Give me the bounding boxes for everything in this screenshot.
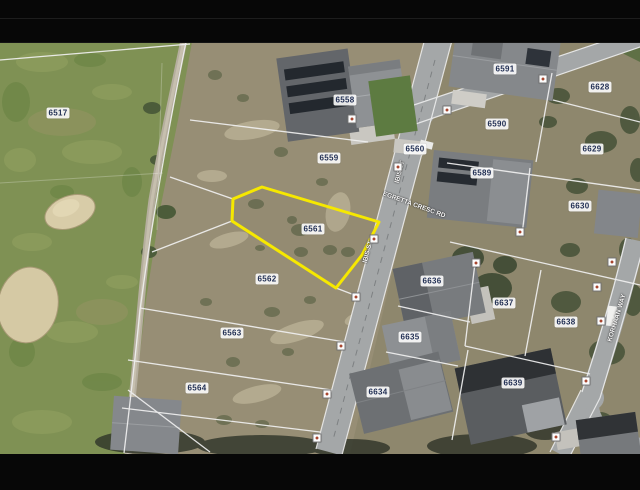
aerial-imagery — [0, 0, 640, 490]
letterbox-bottom — [0, 454, 640, 490]
aerial-map-viewport[interactable]: 6517655865596560656165626563656465896590… — [0, 0, 640, 490]
house-bottom-left — [110, 396, 182, 455]
lawn — [368, 75, 417, 136]
house-6589 — [427, 150, 534, 228]
house-east-edge — [594, 190, 640, 238]
letterbox-top — [0, 0, 640, 43]
